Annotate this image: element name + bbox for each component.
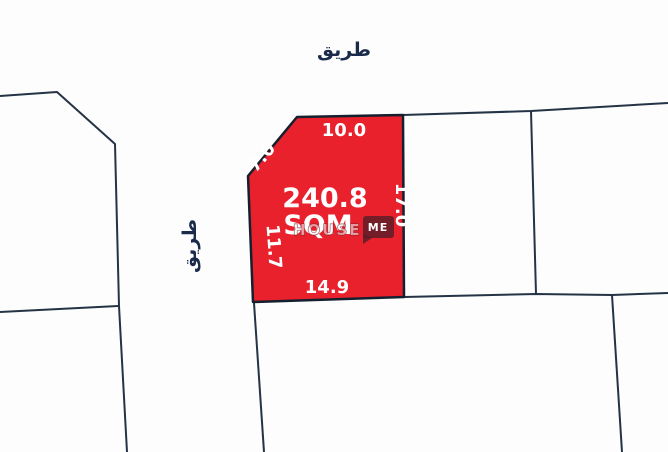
boundary-bottom [404,293,668,297]
dimension-bottom: 14.9 [305,277,349,298]
boundary-left-divider [0,306,118,312]
boundary-right-divider [531,111,536,294]
dimension-right: 17.0 [391,183,412,227]
boundary-top-right [403,103,668,115]
boundary-bottom-right-divider [612,295,622,452]
boundary-road-right-edge [254,303,264,452]
dimension-top: 10.0 [322,120,366,141]
boundary-left-neighbor [0,92,127,452]
road-label-top: طريق [317,39,371,61]
watermark-me-text: ME [368,221,388,234]
road-label-left: طريق [179,219,201,273]
cadastral-map-svg: طريق طريق 10.0 7.0 17.0 11.7 14.9 240.8 … [0,0,668,452]
plot-map: طريق طريق 10.0 7.0 17.0 11.7 14.9 240.8 … [0,0,668,452]
watermark-house-text: HOUSE [293,221,362,239]
dimension-left: 11.7 [261,224,285,270]
